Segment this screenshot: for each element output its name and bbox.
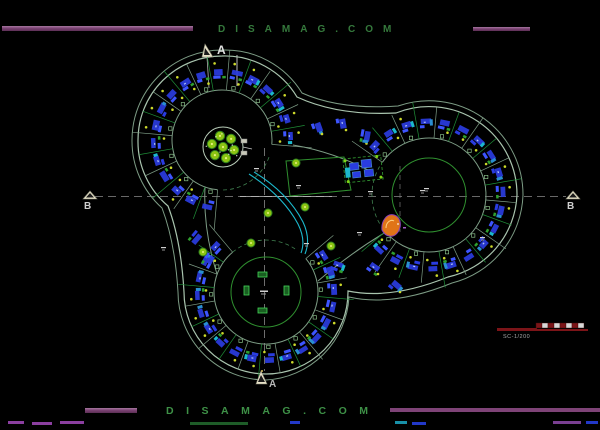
- flag-dot: [261, 370, 263, 372]
- tree-dot: [194, 317, 197, 320]
- tree-dot: [291, 361, 294, 364]
- scale-segment: [548, 323, 554, 328]
- tree-dot: [317, 262, 320, 265]
- tree-dot: [456, 270, 459, 273]
- cad-screenshot: DISAMAG.COM DISAMAG.COM A A B B: [0, 0, 600, 425]
- section-label-a-top: A: [217, 43, 226, 57]
- footer-fragment: [8, 421, 24, 424]
- footer-fragment: [586, 421, 598, 424]
- tree-dot: [508, 207, 511, 210]
- footer-fragment: [60, 421, 84, 424]
- tree-dot: [322, 308, 325, 311]
- tree-dot: [163, 137, 166, 140]
- tree-dot: [381, 238, 384, 241]
- tree-dot: [283, 94, 286, 97]
- tree-dot: [443, 257, 446, 260]
- header-bar-left: [2, 26, 193, 31]
- tree-dot: [253, 69, 256, 72]
- tree-dot: [234, 359, 237, 362]
- tree-dot: [446, 131, 449, 134]
- tree-dot: [176, 76, 179, 79]
- tree-dot: [263, 351, 266, 354]
- footer-bar-right: [390, 408, 600, 412]
- tree-dot: [233, 63, 236, 66]
- tree-dot: [213, 62, 216, 65]
- tree-dot: [490, 245, 493, 248]
- scale-segment: [542, 323, 548, 328]
- site-plan-canvas: DISAMAG.COM DISAMAG.COM A A B B: [0, 0, 600, 425]
- tree-dot: [172, 198, 175, 201]
- level-label: [368, 191, 373, 192]
- tree-dot: [161, 90, 164, 93]
- tree-dot: [190, 188, 193, 191]
- tree-dot: [333, 322, 336, 325]
- tree-dot: [145, 126, 148, 129]
- tree-dot: [279, 140, 282, 143]
- scale-segment: [560, 323, 566, 328]
- scale-segment: [536, 323, 542, 328]
- tree-dot: [237, 83, 240, 86]
- tree-dot: [306, 334, 309, 337]
- tree-dot: [293, 112, 296, 115]
- tree-dot: [436, 274, 439, 277]
- tree-dot: [190, 298, 193, 301]
- tree-dot: [212, 319, 215, 322]
- footer-fragment: [553, 421, 581, 424]
- tree-dot: [504, 165, 507, 168]
- level-label: [304, 243, 309, 244]
- tree-dot: [170, 166, 173, 169]
- tree-dot: [193, 88, 196, 91]
- tree-dot: [397, 137, 400, 140]
- plaza-step: [241, 139, 247, 143]
- tree-dot: [297, 131, 300, 134]
- scale-label: SC-1/200: [503, 334, 530, 340]
- tree-dot: [207, 82, 210, 85]
- watermark-bottom: DISAMAG.COM: [166, 405, 381, 417]
- tree-dot: [277, 125, 280, 128]
- courtyard-bench: [258, 272, 267, 277]
- section-label-b-left: B: [84, 201, 91, 212]
- tree-dot: [377, 273, 380, 276]
- level-label: [296, 185, 301, 186]
- tree-dot: [252, 365, 255, 368]
- tree-dot: [221, 332, 224, 335]
- tree-dot: [308, 352, 311, 355]
- scale-segment: [572, 323, 578, 328]
- scale-segment: [554, 323, 560, 328]
- section-label-a-bottom: A: [269, 379, 276, 390]
- section-label-b-right: B: [567, 201, 574, 212]
- tree-dot: [426, 259, 429, 262]
- tree-dot: [399, 118, 402, 121]
- level-label: [357, 232, 362, 233]
- courtyard-bench: [244, 286, 249, 295]
- scale-segment: [578, 323, 584, 328]
- tree-dot: [462, 138, 465, 141]
- tree-dot: [179, 179, 182, 182]
- level-label: [480, 237, 485, 238]
- tree-dot: [339, 284, 342, 287]
- tree-dot: [394, 267, 397, 270]
- courtyard-bench: [284, 286, 289, 295]
- watermark-top: DISAMAG.COM: [218, 24, 401, 35]
- background: [0, 0, 600, 425]
- tree-dot: [181, 97, 184, 100]
- tree-dot: [508, 186, 511, 189]
- tree-dot: [399, 291, 402, 294]
- header-bar-right: [473, 27, 530, 31]
- tree-dot: [214, 259, 217, 262]
- tree-dot: [204, 334, 207, 337]
- courtyard-bench: [258, 308, 267, 313]
- level-label: [420, 190, 425, 191]
- tree-dot: [293, 343, 296, 346]
- level-label: [254, 168, 259, 169]
- footer-fragment: [290, 421, 300, 424]
- tree-dot: [205, 289, 208, 292]
- tree-dot: [321, 133, 324, 136]
- tree-dot: [345, 129, 348, 132]
- tree-dot: [485, 163, 488, 166]
- footer-fragment: [395, 421, 407, 424]
- tree-dot: [151, 107, 154, 110]
- tree-dot: [171, 108, 174, 111]
- level-label: [161, 247, 166, 248]
- scale-segment: [566, 323, 572, 328]
- footer-bar-left: [85, 408, 137, 413]
- level-label: [424, 188, 429, 189]
- plaza-step: [241, 151, 247, 155]
- tree-dot: [475, 149, 478, 152]
- tree-dot: [409, 256, 412, 259]
